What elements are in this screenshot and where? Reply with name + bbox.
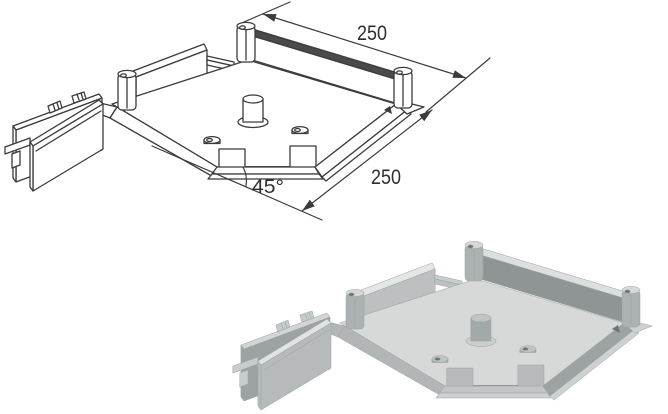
extension-line (426, 58, 490, 112)
extension-line (244, 2, 290, 22)
angle-label: 45° (252, 177, 284, 198)
arrowhead (263, 14, 277, 22)
shaded-render-view (233, 241, 652, 410)
corner-unit-figure: 250 250 45° (0, 0, 668, 414)
arrowhead (302, 200, 315, 211)
arrowhead (452, 70, 466, 78)
figure-canvas: 250 250 45° (0, 0, 668, 414)
dimension-label-top: 250 (357, 22, 387, 45)
dimension-label-right: 250 (371, 166, 401, 189)
